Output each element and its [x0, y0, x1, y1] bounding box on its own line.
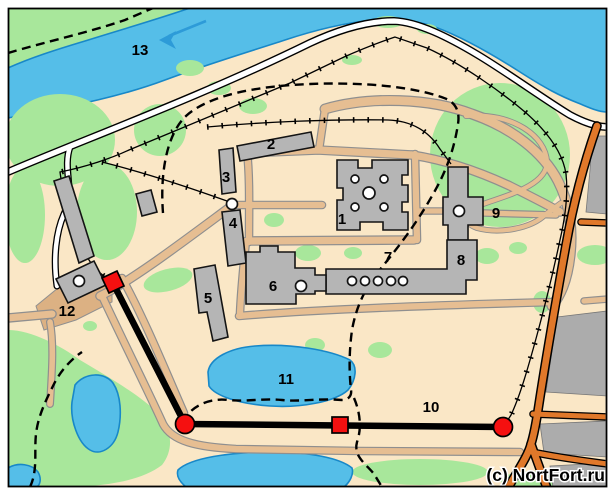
feature-label-6: 6 — [269, 278, 277, 295]
dome-icon — [380, 203, 388, 211]
site-plan-map: 1 2 3 4 5 6 7 8 9 10 11 12 13 (c) NortFo… — [0, 0, 612, 491]
dome-icon — [351, 203, 359, 211]
dome-icon — [399, 277, 408, 286]
dome-icon — [374, 277, 383, 286]
dome-icon — [387, 277, 396, 286]
dome-icon — [348, 277, 357, 286]
feature-label-3: 3 — [222, 169, 230, 186]
feature-label-11: 11 — [278, 371, 294, 388]
dome-icon — [296, 281, 307, 292]
corner-tower-marker-east — [494, 418, 513, 437]
feature-label-8: 8 — [457, 252, 465, 269]
gate-dome-icon — [227, 199, 238, 210]
corner-tower-marker-west — [176, 415, 195, 434]
dome-icon — [74, 276, 85, 287]
feature-label-10: 10 — [423, 399, 440, 416]
dome-icon — [380, 175, 388, 183]
central-dome-icon — [363, 187, 375, 199]
feature-label-7: 7 — [384, 249, 392, 266]
feature-label-13: 13 — [132, 42, 149, 59]
feature-label-5: 5 — [204, 290, 212, 307]
dome-icon — [351, 175, 359, 183]
feature-label-2: 2 — [267, 136, 275, 153]
feature-label-1: 1 — [338, 211, 346, 228]
copyright-text: (c) NortFort.ru — [486, 465, 605, 485]
map-canvas: 1 2 3 4 5 6 7 8 9 10 11 12 13 (c) NortFo… — [0, 0, 612, 491]
feature-label-9: 9 — [492, 205, 500, 222]
dome-icon — [454, 206, 465, 217]
tower-marker-square-wall — [332, 417, 348, 433]
feature-label-4: 4 — [229, 215, 238, 232]
dome-icon — [361, 277, 370, 286]
feature-label-12: 12 — [59, 303, 76, 320]
